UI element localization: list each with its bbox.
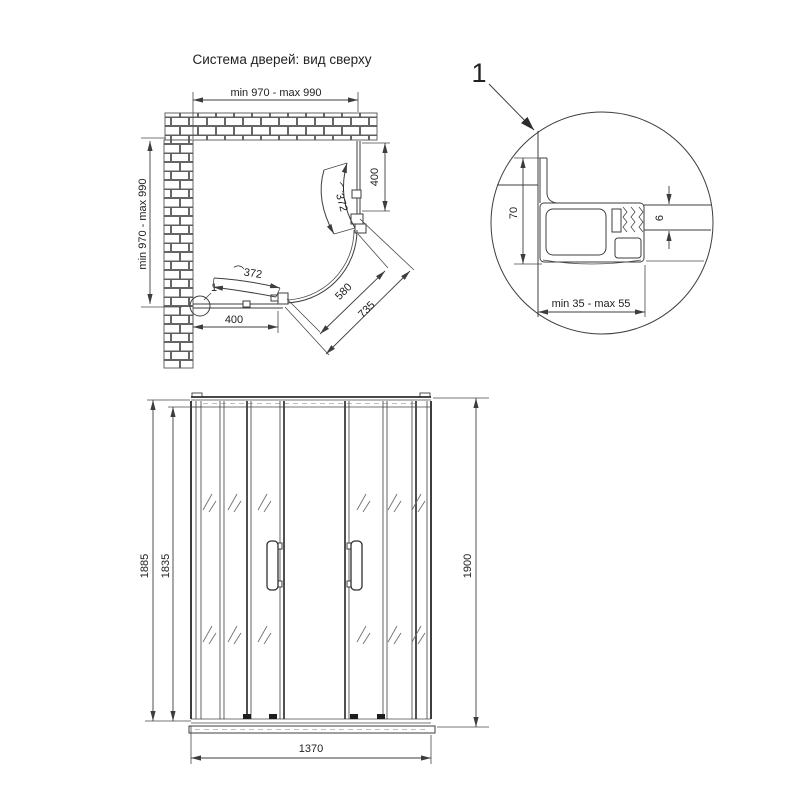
technical-drawing-sheet: Система дверей: вид сверху min 970 - max… — [0, 0, 800, 800]
detail-70-label: 70 — [508, 207, 520, 219]
detail-leader-arrow — [489, 84, 534, 130]
drawing-canvas: Система дверей: вид сверху min 970 - max… — [0, 0, 800, 800]
adjustment-screw-threads — [623, 207, 643, 232]
front-1885-label: 1885 — [139, 554, 151, 578]
profile-lower-chamber — [615, 238, 641, 258]
profile-flange — [540, 158, 557, 203]
detail-view: 1 70 6 min 35 - max 55 — [471, 58, 713, 334]
bottom-rail-lines — [191, 719, 431, 723]
front-1900-extensions — [433, 398, 489, 727]
detail-6-label: 6 — [654, 215, 666, 221]
plan-bottom-panel — [193, 304, 283, 308]
lower-door-band-outer — [214, 278, 280, 288]
plan-right-panel — [357, 141, 360, 214]
opening-735-label: 735 — [356, 299, 377, 320]
front-1900-label: 1900 — [462, 554, 474, 578]
opening-580-dim-line — [320, 271, 385, 334]
handle-right-grip — [351, 541, 362, 590]
lower-door-arc-label: ⌒372 — [232, 264, 263, 281]
detail-number: 1 — [471, 58, 486, 88]
front-1370-label: 1370 — [299, 743, 323, 755]
plan-view: Система дверей: вид сверху min 970 - max… — [137, 52, 414, 368]
upper-door-arc-label: ⌒372 — [330, 181, 350, 213]
top-wall — [165, 113, 377, 140]
left-dim-label: min 970 - max 990 — [137, 178, 149, 269]
lower-door-band-caps — [213, 278, 280, 297]
front-vertical-members — [191, 401, 431, 719]
detail-wall-lines — [497, 131, 538, 317]
profile-box-outer — [540, 203, 644, 262]
plan-bottom-panel-bracket — [243, 301, 250, 307]
front-view: 1885 1835 1900 1370 — [139, 393, 489, 764]
plan-right-panel-bracket — [352, 190, 361, 198]
door-roller-feet — [243, 714, 385, 719]
left-wall — [164, 140, 193, 368]
plan-bottom-corner-bracket — [278, 293, 288, 304]
bottom-400-label: 400 — [225, 314, 243, 326]
front-1835-label: 1835 — [160, 554, 172, 578]
right-400-label: 400 — [369, 168, 381, 186]
opening-580-label: 580 — [333, 281, 354, 302]
top-dim-label: min 970 - max 990 — [230, 87, 321, 99]
profile-box-inner — [546, 209, 606, 255]
lower-door-band-inner — [213, 287, 276, 297]
detail-3555-label: min 35 - max 55 — [552, 298, 631, 310]
detail-callout-number: 1 — [211, 282, 217, 294]
handle-left-grip — [267, 541, 278, 590]
plan-right-corner-bracket — [351, 214, 363, 224]
plan-title: Система дверей: вид сверху — [192, 52, 371, 67]
profile-clamp-plate — [612, 209, 621, 232]
upper-door-band-inner — [321, 170, 334, 234]
glass-hatch-marks — [203, 494, 425, 644]
